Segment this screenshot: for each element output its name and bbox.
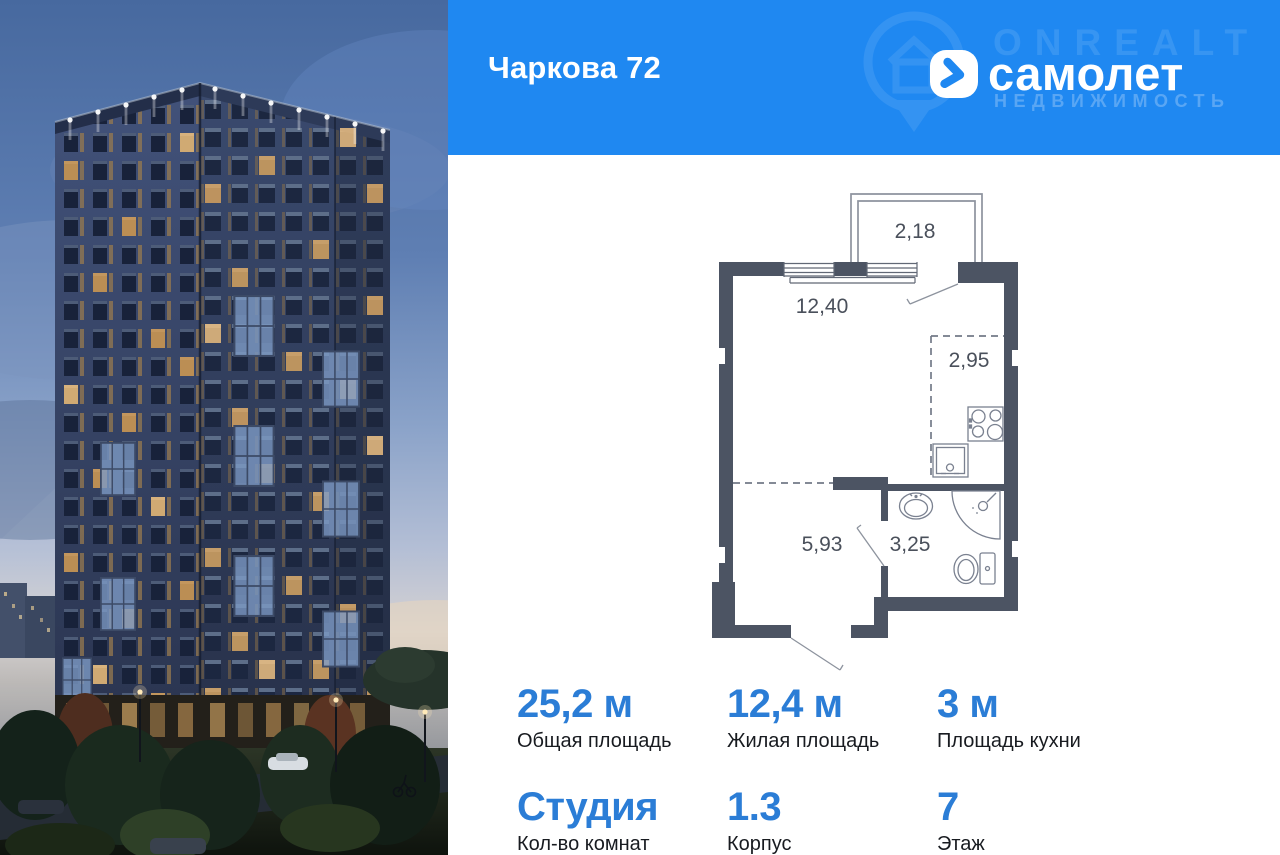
stat-label: Корпус xyxy=(727,832,937,855)
living-room-area-label: 12,40 xyxy=(796,295,849,318)
stat-building-number: 1.3 Корпус xyxy=(727,786,937,855)
bathroom-area-label: 3,25 xyxy=(890,533,931,556)
hallway-area-label: 5,93 xyxy=(802,533,843,556)
stat-label: Этаж xyxy=(937,832,1147,855)
shower-icon xyxy=(952,491,1000,539)
brand-wordmark: самолет xyxy=(988,44,1184,104)
door-swings xyxy=(791,284,958,670)
building-photo-illustration xyxy=(0,0,448,855)
page-title: Чаркова 72 xyxy=(488,50,661,86)
stat-value: 7 xyxy=(937,786,1147,828)
stat-value: 1.3 xyxy=(727,786,937,828)
stat-label: Общая площадь xyxy=(517,729,727,753)
stat-floor-number: 7 Этаж xyxy=(937,786,1147,855)
wall-notches xyxy=(719,348,1018,563)
stat-rooms: Студия Кол-во комнат xyxy=(517,786,727,855)
area-labels: 2,18 12,40 2,95 5,93 3,25 xyxy=(796,220,990,556)
stat-value: 12,4 м xyxy=(727,683,937,725)
stat-value: 3 м xyxy=(937,683,1147,725)
car xyxy=(18,800,64,814)
stat-kitchen-area: 3 м Площадь кухни xyxy=(937,683,1147,753)
stove-icon xyxy=(968,407,1003,441)
kitchen-sink-icon xyxy=(933,444,968,477)
header-banner: Чаркова 72 ONREALT НЕДВИЖИМОСТЬ самолет xyxy=(448,0,1280,155)
details-panel: Чаркова 72 ONREALT НЕДВИЖИМОСТЬ самолет xyxy=(448,0,1280,855)
window-lines xyxy=(784,262,917,283)
balcony-area-label: 2,18 xyxy=(895,220,936,243)
car xyxy=(150,838,206,854)
listing-card: Чаркова 72 ONREALT НЕДВИЖИМОСТЬ самолет xyxy=(0,0,1280,855)
samolet-logo-icon xyxy=(930,50,978,98)
walls xyxy=(712,262,1018,638)
building-photo xyxy=(0,0,448,855)
tower xyxy=(55,83,390,790)
stat-label: Площадь кухни xyxy=(937,729,1147,753)
stat-living-area: 12,4 м Жилая площадь xyxy=(727,683,937,753)
stat-value: 25,2 м xyxy=(517,683,727,725)
stat-label: Кол-во комнат xyxy=(517,832,727,855)
stat-label: Жилая площадь xyxy=(727,729,937,753)
kitchen-area-label: 2,95 xyxy=(949,349,990,372)
zone-dashed-lines xyxy=(733,336,1004,483)
stat-value: Студия xyxy=(517,786,727,828)
stat-total-area: 25,2 м Общая площадь xyxy=(517,683,727,753)
washbasin-icon xyxy=(900,493,933,519)
stats-grid: 25,2 м Общая площадь 12,4 м Жилая площад… xyxy=(517,683,1147,855)
balcony-outline xyxy=(851,194,982,262)
toilet-icon xyxy=(954,553,995,584)
